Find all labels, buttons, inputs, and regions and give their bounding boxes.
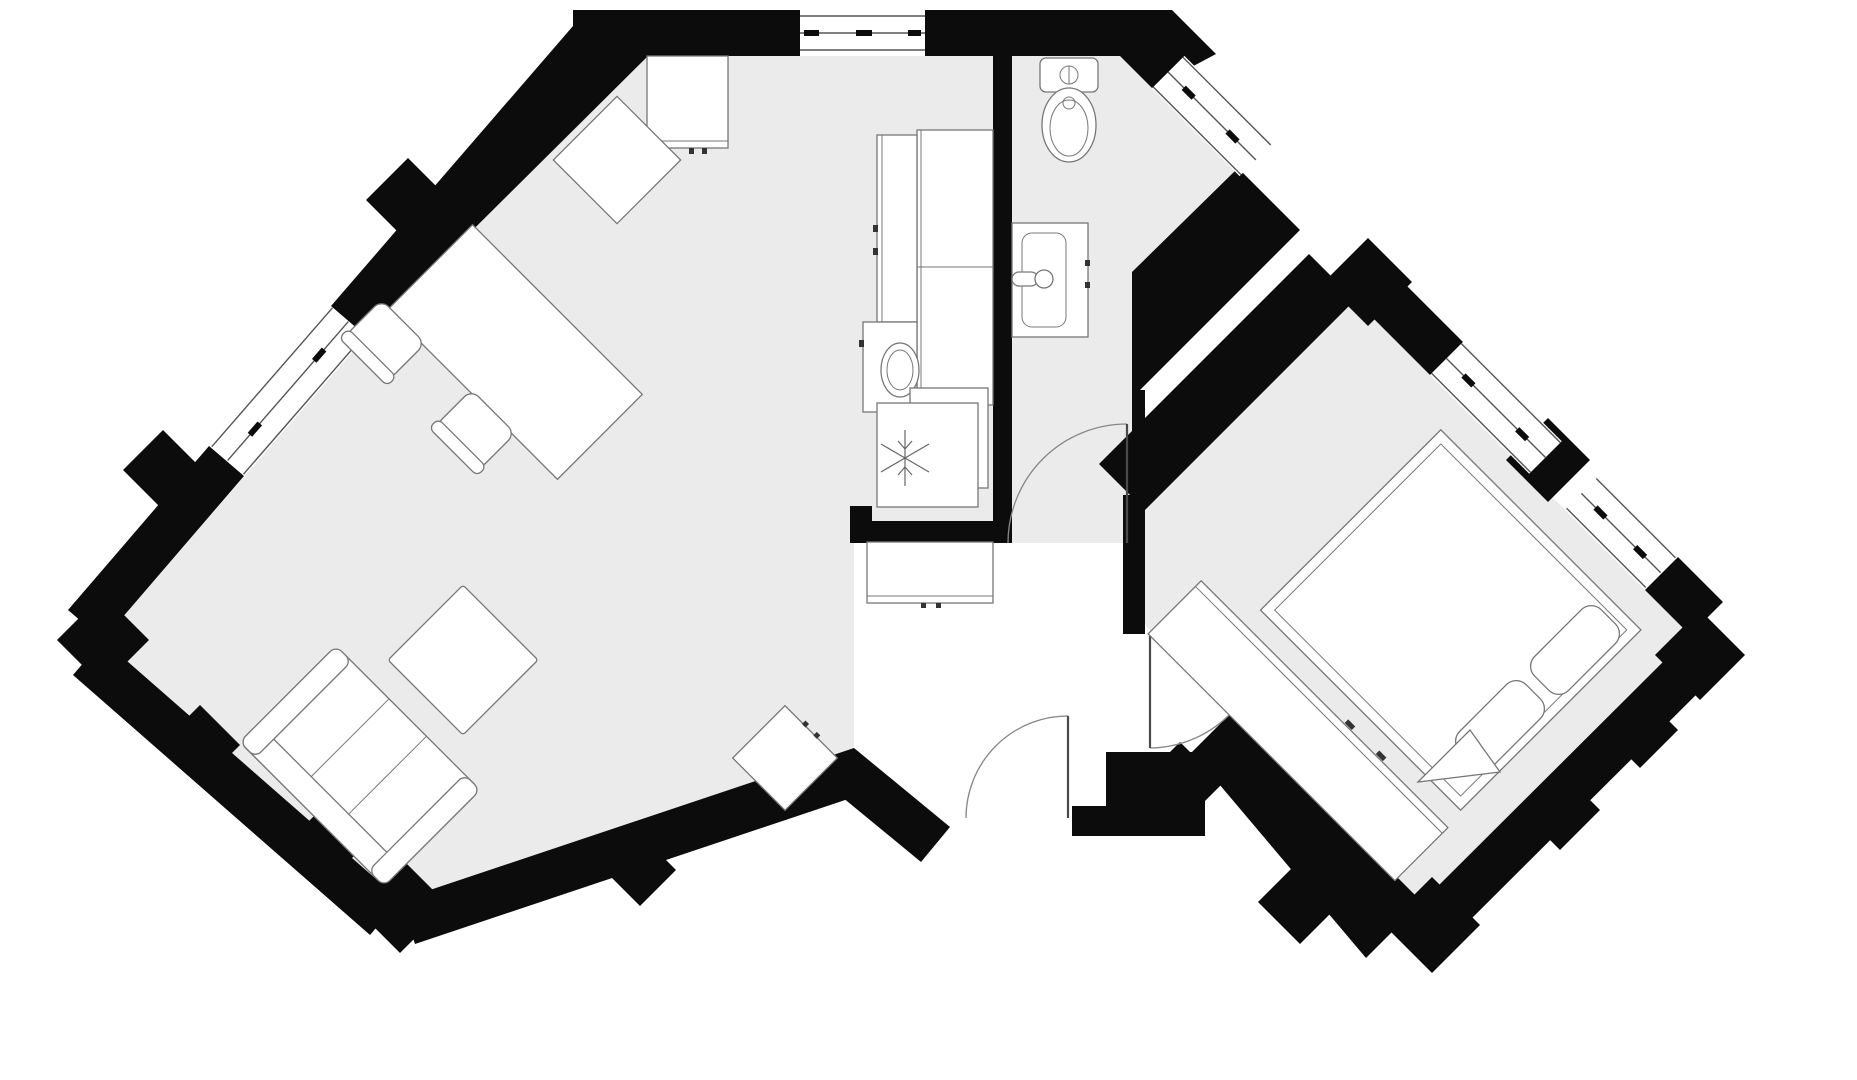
toilet[interactable] xyxy=(1040,58,1098,162)
wall-central xyxy=(993,48,1012,543)
wall-kitchen-bottom xyxy=(850,521,1012,543)
window-top[interactable] xyxy=(800,14,925,52)
hall-wardrobe[interactable] xyxy=(867,542,993,608)
hallway-furniture xyxy=(867,542,993,608)
kitchen-counter[interactable] xyxy=(873,135,917,322)
kitchen-furniture xyxy=(859,130,993,507)
floor-plan-canvas xyxy=(0,0,1857,1080)
wall-kitchen-stub xyxy=(850,506,872,523)
refrigerator[interactable] xyxy=(877,388,988,507)
floor-plan-page xyxy=(0,0,1857,1080)
kitchen-tall-cabinet[interactable] xyxy=(917,130,993,405)
washbasin-vanity[interactable] xyxy=(1012,223,1090,337)
